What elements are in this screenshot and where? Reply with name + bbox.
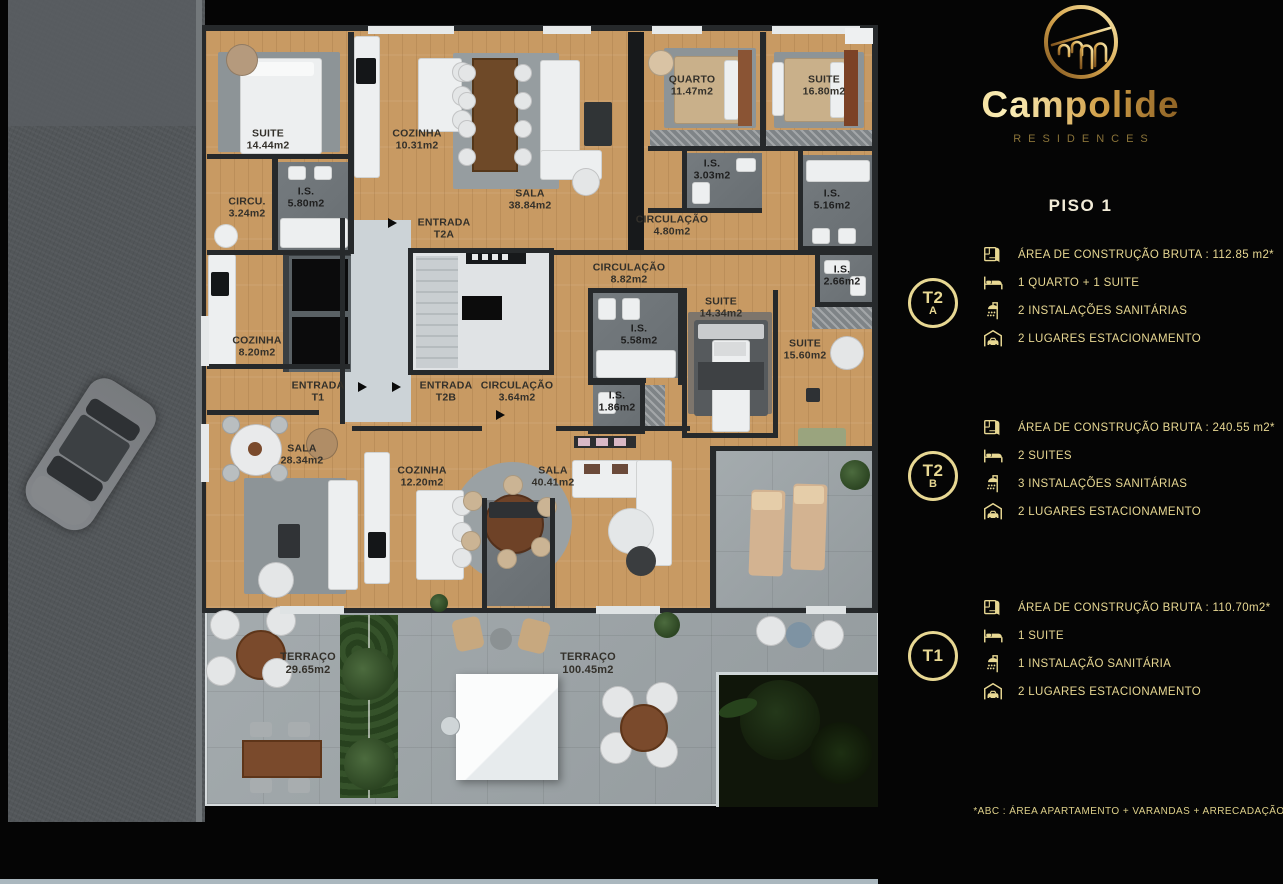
armchair <box>648 50 674 76</box>
plant <box>840 460 870 490</box>
room-label-circu-324: CIRCU.3.24m2 <box>228 196 265 221</box>
plant <box>430 594 448 612</box>
floor-title: PISO 1 <box>878 196 1283 216</box>
room-label-entrada-t2b: ENTRADAT2B <box>420 380 473 405</box>
room-label-entrada-t2a: ENTRADAT2A <box>418 217 471 242</box>
closet-strip <box>812 307 872 329</box>
room-label-sala-2834: SALA28.34m2 <box>281 443 324 468</box>
room-label-terraco-2965: TERRAÇO29.65m2 <box>280 651 336 677</box>
window-sill <box>543 26 591 34</box>
sink <box>314 166 332 180</box>
room-label-cozinha-1220: COZINHA12.20m2 <box>397 465 446 490</box>
terrace-chair <box>250 722 272 737</box>
room-label-sala-3884: SALA38.84m2 <box>509 188 552 213</box>
room-label-suite-1444: SUITE14.44m2 <box>247 128 290 153</box>
room-label-entrada-t1: ENTRADAT1 <box>292 380 345 405</box>
aqueduct-arches-icon <box>1041 2 1121 82</box>
toilet <box>622 298 640 320</box>
shower-icon <box>982 473 1004 495</box>
cooktop <box>211 272 229 296</box>
lounger-pillow <box>794 486 824 504</box>
fountain <box>440 716 460 736</box>
cooktop <box>356 58 376 84</box>
room-label-is-558: I.S.5.58m2 <box>621 323 658 348</box>
window-sill <box>368 26 454 34</box>
room-label-quarto-1147: QUARTO11.47m2 <box>669 74 716 99</box>
bench-cushion <box>596 438 608 446</box>
window-box <box>845 28 873 44</box>
room-label-suite-1560: SUITE15.60m2 <box>784 338 827 363</box>
lobby-corridor <box>345 220 411 422</box>
plant <box>654 612 680 638</box>
dining-table <box>472 58 518 172</box>
bathtub <box>280 218 348 248</box>
bed-pillows <box>714 342 746 356</box>
terrace-chair <box>288 722 310 737</box>
glass-door <box>596 606 660 614</box>
room-label-circulacao-882: CIRCULAÇÃO8.82m2 <box>593 262 666 287</box>
washer <box>214 224 238 248</box>
bed-throw <box>698 362 764 390</box>
unit-block-t2a: T2 A ÁREA DE CONSTRUÇÃO BRUTA : 112.85 m… <box>878 244 1283 356</box>
bed-pillows <box>698 324 764 339</box>
bench <box>772 62 784 116</box>
window-sill <box>652 26 702 34</box>
unit-badge-t1: T1 <box>908 631 958 681</box>
brand-subtitle: RESIDENCES <box>878 133 1283 145</box>
bathtub <box>596 350 676 378</box>
glass-door <box>280 606 344 614</box>
shower-icon <box>982 300 1004 322</box>
spec-bathrooms: 1 INSTALAÇÃO SANITÁRIA <box>1018 653 1171 675</box>
room-label-sala-4041: SALA40.41m2 <box>532 465 575 490</box>
toilet <box>598 298 616 320</box>
bed-icon <box>982 272 1004 294</box>
terrace-chair <box>250 778 272 793</box>
brand-logo <box>878 2 1283 82</box>
bed-headboard <box>844 50 858 126</box>
stair-opening <box>462 296 502 320</box>
room-label-cozinha-1031: COZINHA10.31m2 <box>392 128 441 153</box>
side-table <box>490 628 512 650</box>
sink <box>812 228 830 244</box>
room-label-suite-1434: SUITE14.34m2 <box>700 296 743 321</box>
door-arrow <box>358 382 367 392</box>
garden-tree <box>740 680 820 760</box>
floorplan-icon <box>982 417 1004 439</box>
spec-parking: 2 LUGARES ESTACIONAMENTO <box>1018 328 1201 350</box>
bed-icon <box>982 625 1004 647</box>
floorplan-icon <box>982 597 1004 619</box>
side-table <box>786 622 812 648</box>
table-decor <box>248 442 262 456</box>
hedge-palm-1 <box>342 648 394 700</box>
console-items <box>472 254 512 260</box>
footnote: *ABC : ÁREA APARTAMENTO + VARANDAS + ARR… <box>964 806 1283 817</box>
spec-bedrooms: 1 QUARTO + 1 SUITE <box>1018 272 1139 294</box>
room-label-terraco-10045: TERRAÇO100.45m2 <box>560 651 616 677</box>
info-panel: Campolide RESIDENCES PISO 1 T2 A ÁREA DE… <box>878 0 1283 884</box>
spec-parking: 2 LUGARES ESTACIONAMENTO <box>1018 501 1201 523</box>
spec-bathrooms: 3 INSTALAÇÕES SANITÁRIAS <box>1018 473 1187 495</box>
closet-suite <box>766 130 872 147</box>
stair-treads <box>416 256 458 368</box>
room-label-is-516: I.S.5.16m2 <box>814 188 851 213</box>
sofa <box>328 480 358 590</box>
unit-badge-t2a: T2 A <box>908 278 958 328</box>
sofa-cushion <box>584 464 600 474</box>
window-sill <box>201 316 209 366</box>
sink <box>838 228 856 244</box>
bathtub <box>806 160 870 182</box>
sink <box>288 166 306 180</box>
room-label-circulacao-480: CIRCULAÇÃO4.80m2 <box>636 214 709 239</box>
room-label-is-266: I.S.2.66m2 <box>824 264 861 289</box>
door-arrow <box>392 382 401 392</box>
spec-bedrooms: 1 SUITE <box>1018 625 1064 647</box>
unit-block-t1: T1 ÁREA DE CONSTRUÇÃO BRUTA : 110.70m2* … <box>878 597 1283 709</box>
sink <box>736 158 756 172</box>
coffee-table <box>584 102 612 146</box>
room-label-is-186: I.S.1.86m2 <box>599 390 636 415</box>
kitchen-counter <box>364 452 390 584</box>
spec-parking: 2 LUGARES ESTACIONAMENTO <box>1018 681 1201 703</box>
cooktop <box>368 532 386 558</box>
room-label-is-303: I.S.3.03m2 <box>694 158 731 183</box>
spec-area: ÁREA DE CONSTRUÇÃO BRUTA : 110.70m2* <box>1018 597 1270 619</box>
lounger-pillow <box>752 492 782 510</box>
bench-cushion <box>614 438 626 446</box>
closet-hall <box>645 385 665 431</box>
room-label-is-580: I.S.5.80m2 <box>288 186 325 211</box>
brand-name: Campolide <box>878 84 1283 126</box>
sidewalk <box>8 0 196 126</box>
floorplan-icon <box>982 244 1004 266</box>
spec-area: ÁREA DE CONSTRUÇÃO BRUTA : 112.85 m2* <box>1018 244 1274 266</box>
garage-icon <box>982 681 1004 703</box>
armchair-dark <box>626 546 656 576</box>
room-label-circulacao-364: CIRCULAÇÃO3.64m2 <box>481 380 554 405</box>
window-sill <box>201 424 209 482</box>
toilet <box>692 182 710 204</box>
side-table <box>806 388 820 402</box>
bed-icon <box>982 445 1004 467</box>
hedge-palm-2 <box>344 738 396 790</box>
garage-icon <box>982 501 1004 523</box>
garden-palm <box>810 722 872 784</box>
glass-door <box>806 606 846 614</box>
bed-headboard <box>738 50 752 126</box>
bed-pillows <box>724 60 739 120</box>
terrace-chair <box>288 778 310 793</box>
spec-bathrooms: 2 INSTALAÇÕES SANITÁRIAS <box>1018 300 1187 322</box>
spec-bedrooms: 2 SUITES <box>1018 445 1072 467</box>
closet-quarto <box>650 130 760 147</box>
pergola-canopy <box>456 674 558 780</box>
shower-icon <box>982 653 1004 675</box>
unit-block-t2b: T2 B ÁREA DE CONSTRUÇÃO BRUTA : 240.55 m… <box>878 417 1283 529</box>
floorplan-sheet: SUITE14.44m2 COZINHA10.31m2 SALA38.84m2 … <box>0 0 1283 884</box>
door-arrow <box>388 218 397 228</box>
armchair <box>226 44 258 76</box>
spec-area: ÁREA DE CONSTRUÇÃO BRUTA : 240.55 m2* <box>1018 417 1275 439</box>
room-label-suite-1680: SUITE16.80m2 <box>803 74 846 99</box>
coffee-table <box>278 524 300 558</box>
room-label-cozinha-820: COZINHA8.20m2 <box>232 335 281 360</box>
bench-cushion <box>578 438 590 446</box>
sofa-cushion <box>612 464 628 474</box>
unit-badge-t2b: T2 B <box>908 451 958 501</box>
curb <box>196 0 202 822</box>
terrace-round-table <box>620 704 668 752</box>
garage-icon <box>982 328 1004 350</box>
door-arrow <box>496 410 505 420</box>
terrace-dining-table <box>242 740 322 778</box>
